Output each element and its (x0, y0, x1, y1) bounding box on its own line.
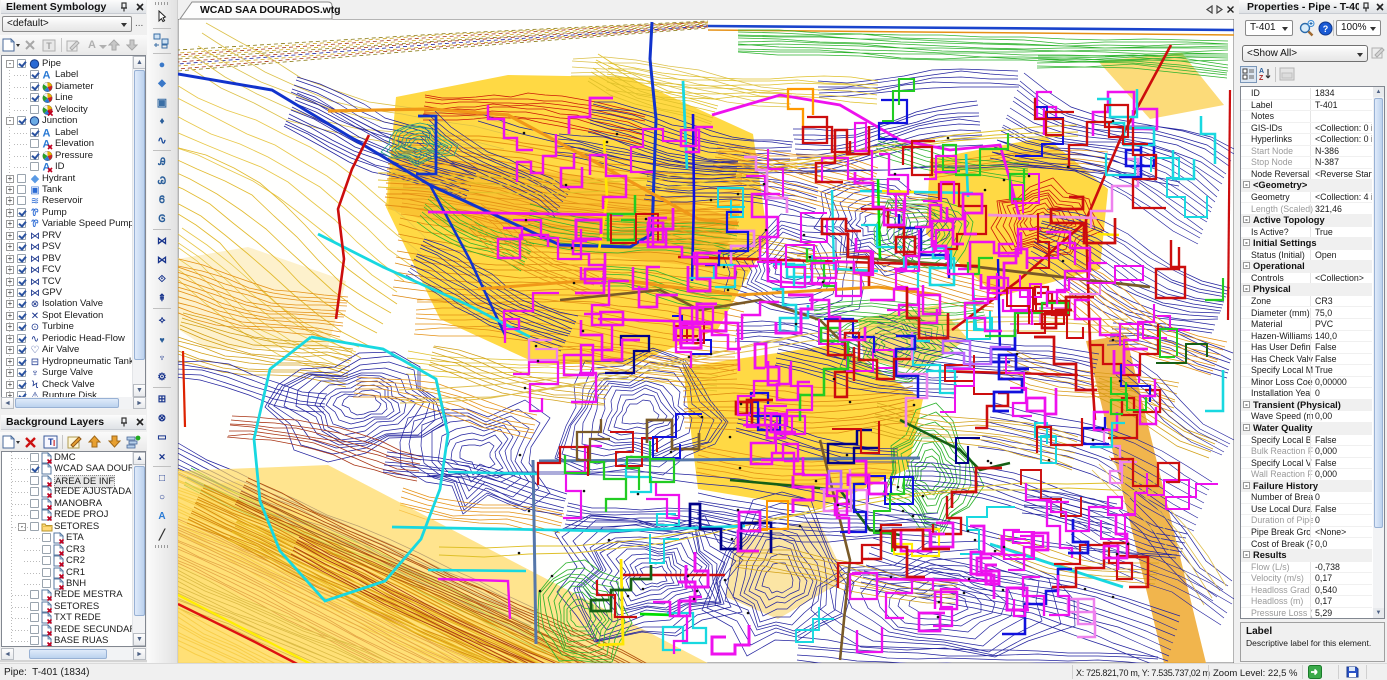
svg-text:∿: ∿ (31, 334, 39, 345)
svg-text:A: A (43, 70, 51, 82)
svg-text:⊙: ⊙ (31, 322, 39, 333)
svg-text:T: T (46, 41, 52, 51)
svg-text:⊗: ⊗ (31, 299, 39, 310)
svg-text:⋈: ⋈ (30, 277, 40, 288)
svg-text:▣: ▣ (30, 185, 39, 196)
svg-text:≋: ≋ (31, 196, 39, 207)
svg-text:I: I (53, 439, 55, 448)
svg-text:⊟: ⊟ (31, 357, 39, 368)
svg-text:♆: ♆ (31, 368, 39, 379)
svg-text:A: A (1259, 68, 1264, 75)
svg-text:A: A (43, 127, 51, 139)
svg-text:⋈: ⋈ (30, 254, 40, 265)
svg-text:Ꮘ: Ꮘ (31, 219, 39, 230)
svg-text:✕: ✕ (31, 311, 39, 322)
svg-text:Z: Z (1259, 75, 1264, 81)
svg-text:♡: ♡ (31, 345, 40, 356)
svg-text:⋈: ⋈ (30, 231, 40, 242)
svg-text:⋈: ⋈ (30, 288, 40, 299)
svg-text:?: ? (1323, 24, 1329, 34)
svg-text:A: A (88, 39, 96, 51)
svg-text:Ϟ: Ϟ (32, 380, 39, 391)
svg-text:◆: ◆ (31, 173, 40, 185)
svg-text:⋈: ⋈ (30, 242, 40, 253)
svg-text:Ꮘ: Ꮘ (31, 208, 39, 219)
svg-text:⋈: ⋈ (30, 265, 40, 276)
